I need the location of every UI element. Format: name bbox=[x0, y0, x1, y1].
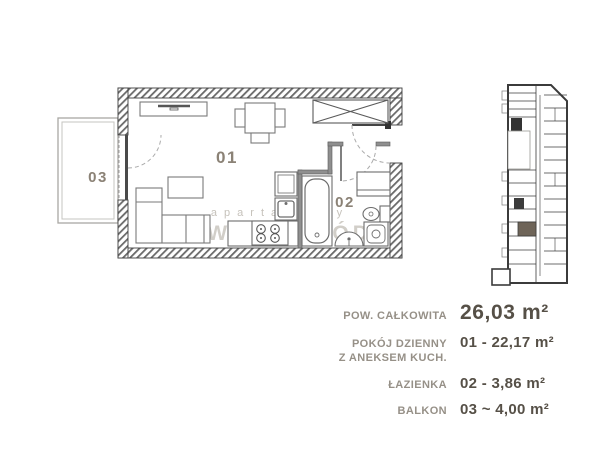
floor-plan: apartamenty WOLNA ŁÓDŹ bbox=[50, 75, 410, 270]
wall-left-upper bbox=[118, 88, 128, 135]
bathroom-wall-neck bbox=[328, 142, 332, 174]
keyplan-courtyard bbox=[508, 131, 530, 169]
bathroom-wall-left bbox=[298, 170, 302, 248]
coffee-table bbox=[168, 177, 203, 198]
room-label-03: 03 bbox=[88, 169, 108, 186]
keyplan-core-2 bbox=[514, 198, 524, 209]
wall-bottom bbox=[118, 248, 402, 258]
area-legend: POW. CAŁKOWITA 26,03 m² POKÓJ DZIENNY Z … bbox=[339, 301, 572, 419]
keyplan-highlighted-unit bbox=[518, 222, 536, 236]
bathroom-label: ŁAZIENKA bbox=[339, 379, 447, 393]
balcony-label: BALKON bbox=[339, 405, 447, 419]
tv-unit bbox=[140, 102, 207, 116]
kitchen-sink bbox=[275, 198, 297, 220]
bathroom-wall-shoulder bbox=[298, 170, 332, 174]
wall-right-lower bbox=[390, 163, 402, 258]
balcony-door-frame bbox=[125, 135, 128, 200]
wall-top bbox=[118, 88, 402, 98]
toilet bbox=[363, 206, 390, 222]
living-room-label-line1: POKÓJ DZIENNY bbox=[352, 338, 447, 350]
living-room-label-line2: Z ANEKSEM KUCH. bbox=[339, 352, 447, 364]
bathroom-wall-stub-left bbox=[328, 142, 343, 146]
kitchen-fridge bbox=[275, 172, 297, 196]
stove bbox=[252, 221, 288, 245]
bathroom-shelf bbox=[357, 172, 390, 196]
building-key-plan bbox=[485, 18, 600, 288]
washing-machine bbox=[364, 222, 388, 246]
wall-left-lower bbox=[118, 200, 128, 258]
wardrobe bbox=[313, 100, 388, 123]
dining-table bbox=[235, 103, 285, 143]
keyplan-stair-core bbox=[511, 118, 522, 131]
chair-bottom bbox=[251, 133, 269, 143]
room-label-01: 01 bbox=[216, 148, 238, 167]
total-area-label: POW. CAŁKOWITA bbox=[339, 310, 447, 324]
bathroom-value: 02 - 3,86 m² bbox=[460, 375, 572, 392]
wall-right-upper bbox=[390, 98, 402, 125]
room-label-02: 02 bbox=[335, 194, 355, 211]
balcony-value: 03 ~ 4,00 m² bbox=[460, 401, 572, 418]
chair-right bbox=[275, 109, 285, 127]
keyplan-outline bbox=[508, 85, 567, 283]
living-room-value: 01 - 22,17 m² bbox=[460, 334, 572, 351]
keyplan-annex bbox=[492, 269, 510, 285]
bathroom-wall-stub-right bbox=[376, 142, 390, 146]
chair-left bbox=[235, 109, 245, 127]
living-room-label: POKÓJ DZIENNY Z ANEKSEM KUCH. bbox=[339, 338, 447, 366]
total-area-value: 26,03 m² bbox=[460, 301, 572, 325]
bathtub bbox=[302, 176, 332, 246]
balcony-door-swing-arc bbox=[128, 135, 161, 168]
